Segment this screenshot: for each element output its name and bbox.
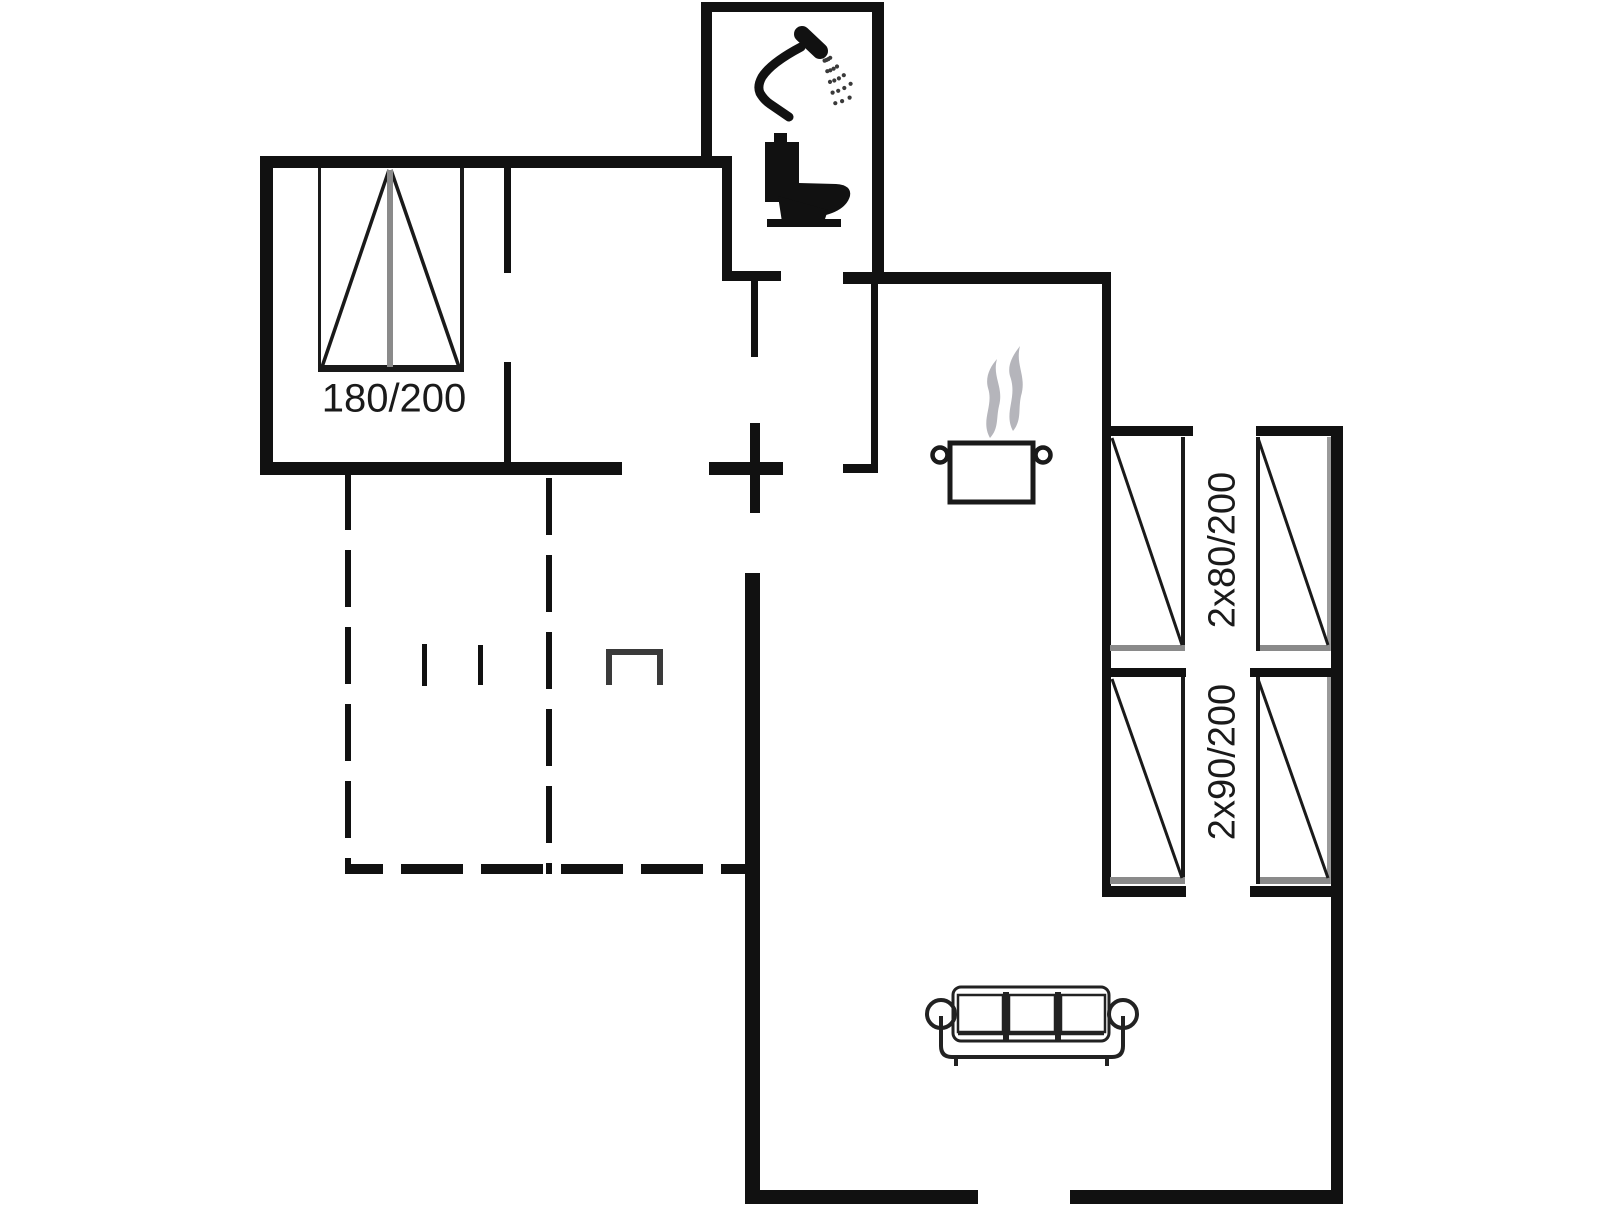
svg-text:180/200: 180/200 (322, 377, 467, 421)
